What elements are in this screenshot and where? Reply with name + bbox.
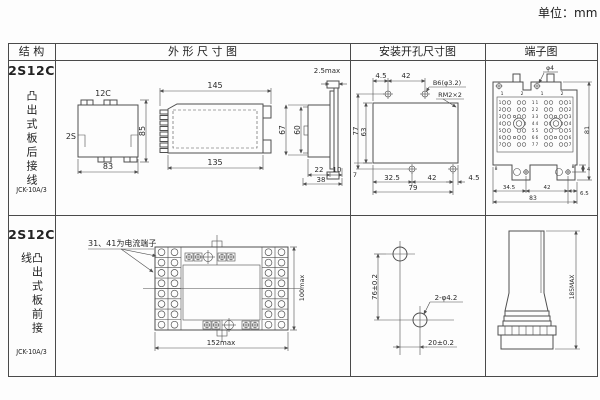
dim-77: 77: [352, 127, 360, 136]
row1-outline-drawing: 12C 2S 83 85 145 135 67 60 2: [55, 60, 350, 215]
dim-7: 7: [353, 171, 357, 179]
dim-152max: 152max: [207, 339, 236, 347]
hole-spec-label: B6(φ3.2): [433, 79, 461, 87]
dim-34-5: 34.5: [503, 185, 516, 191]
row-num-left: 7: [499, 142, 502, 147]
unit-label: 单位：mm: [538, 4, 597, 21]
row-num-right: 7: [569, 142, 572, 147]
dim-76: 76±0.2: [371, 274, 379, 300]
side-view-shape: [160, 104, 271, 153]
dim-60: 60: [293, 125, 302, 135]
terminal-body: [493, 74, 577, 180]
row-num-right: 1: [569, 100, 572, 105]
row2-spec: JCK-10A/3: [10, 348, 52, 356]
row-num-left: 1: [499, 100, 502, 105]
row2-model: 2S12C: [8, 227, 55, 242]
row2-terminal-drawing: 185MAX: [485, 215, 597, 376]
table-border-bottom: [8, 376, 598, 377]
row2-outline-drawing: 31、41为电流端子 152max 100max: [55, 215, 350, 376]
row-num-right: 4: [569, 121, 572, 126]
relay-datasheet-page: { "unit_label": "单位：mm", "headers": { "s…: [0, 0, 600, 400]
dim-42-bottom: 42: [428, 174, 437, 182]
table-border-right: [597, 43, 598, 377]
relay-side-body: [498, 231, 556, 349]
current-terminal-note: 31、41为电流端子: [88, 238, 156, 248]
dim-42-terminal: 42: [544, 185, 551, 191]
row-num-left: 2: [499, 107, 502, 112]
header-mounting: 安装开孔尺寸图: [350, 43, 485, 60]
row-num-left: 5: [499, 128, 502, 133]
dim-12c: 12C: [95, 89, 111, 98]
dim-67: 67: [278, 125, 287, 135]
dim-42-top: 42: [402, 72, 411, 80]
dim-22: 22: [315, 166, 324, 174]
terminal-screws-top: [496, 83, 541, 90]
row1-mounting-type: 凸出式板后接线: [8, 90, 55, 190]
dim-10: 10: [333, 166, 342, 174]
dim-145: 145: [207, 81, 222, 90]
dim-100max: 100max: [298, 275, 306, 302]
row2-mounting-type-text: 凸出式板前接线: [21, 252, 43, 347]
dim-2-5max: 2.5max: [314, 67, 340, 75]
dim-2s: 2S: [66, 132, 76, 141]
foot-num-right: 8: [572, 164, 575, 170]
center-num: 3 3: [532, 114, 539, 119]
row-num-left: 6: [499, 135, 502, 140]
row2-mounting-type: 凸出式板前接线: [8, 252, 55, 347]
hole-bottom: [398, 306, 454, 355]
footprint-axes: [143, 235, 301, 342]
dim-4-5-top: 4.5: [375, 72, 386, 80]
dim-4-small: 4: [587, 167, 590, 173]
dim-32-5: 32.5: [384, 174, 400, 182]
col-num-1: 1: [501, 91, 504, 97]
dim-6-5: 6.5: [580, 191, 589, 197]
row1-model: 2S12C: [8, 63, 55, 78]
row-num-right: 2: [569, 107, 572, 112]
row1-mounting-type-text: 凸出式板后接线: [26, 90, 37, 190]
dim-79: 79: [409, 184, 418, 192]
header-outline: 外 形 尺 寸 图: [55, 43, 350, 60]
row-num-right: 5: [569, 128, 572, 133]
center-num: 6 6: [532, 135, 539, 140]
row-num-right: 6: [569, 135, 572, 140]
dim-135: 135: [207, 158, 222, 167]
center-num: 2 2: [532, 107, 539, 112]
row1-spec: JCK-10A/3: [10, 186, 52, 194]
hole-top: [386, 241, 415, 355]
header-structure: 结 构: [8, 43, 55, 60]
row-num-right: 3: [569, 114, 572, 119]
center-num: 5 5: [532, 128, 539, 133]
foot-num-left: 8: [495, 166, 498, 172]
dim-63: 63: [360, 128, 368, 137]
dim-38: 38: [317, 176, 326, 184]
end-view-shape: [304, 81, 339, 179]
row2-mounting-drawing: 76±0.2 2-φ4.2 20±0.2: [350, 215, 485, 376]
dim-20: 20±0.2: [428, 339, 454, 347]
center-num: 4 4: [532, 121, 539, 126]
terminal-screw-label: φ4: [546, 65, 554, 72]
col-num-4: 2: [561, 91, 564, 97]
terminal-feet: [514, 169, 572, 176]
center-num: 1 1: [532, 100, 539, 105]
col-num-2: 2: [521, 91, 524, 97]
row-num-left: 3: [499, 114, 502, 119]
col-num-3: 1: [541, 91, 544, 97]
dim-81: 81: [583, 126, 591, 134]
mounting-cutout: [373, 103, 458, 163]
row1-mounting-drawing: 4.5 42 B6(φ3.2) RM2×2 77 63 7 32.5 42 4.…: [350, 60, 485, 215]
header-terminal: 端子图: [485, 43, 597, 60]
row-num-left: 4: [499, 121, 502, 126]
dim-85: 85: [138, 126, 147, 136]
mounting-holes: [383, 89, 458, 174]
dim-185max: 185MAX: [569, 275, 576, 300]
screw-spec-label: RM2×2: [438, 91, 462, 99]
center-num: 7 7: [532, 142, 539, 147]
dim-83: 83: [103, 162, 113, 171]
dim-83-terminal: 83: [529, 195, 537, 202]
top-view-shape: [78, 100, 138, 162]
dim-4-5-bottom: 4.5: [468, 174, 479, 182]
hole-label-2-phi42: 2-φ4.2: [435, 294, 458, 302]
row1-terminal-drawing: φ4 1 2 1 2 1 2 3 4 5 6 7 1 2 3 4 5 6 7 1…: [485, 60, 597, 215]
